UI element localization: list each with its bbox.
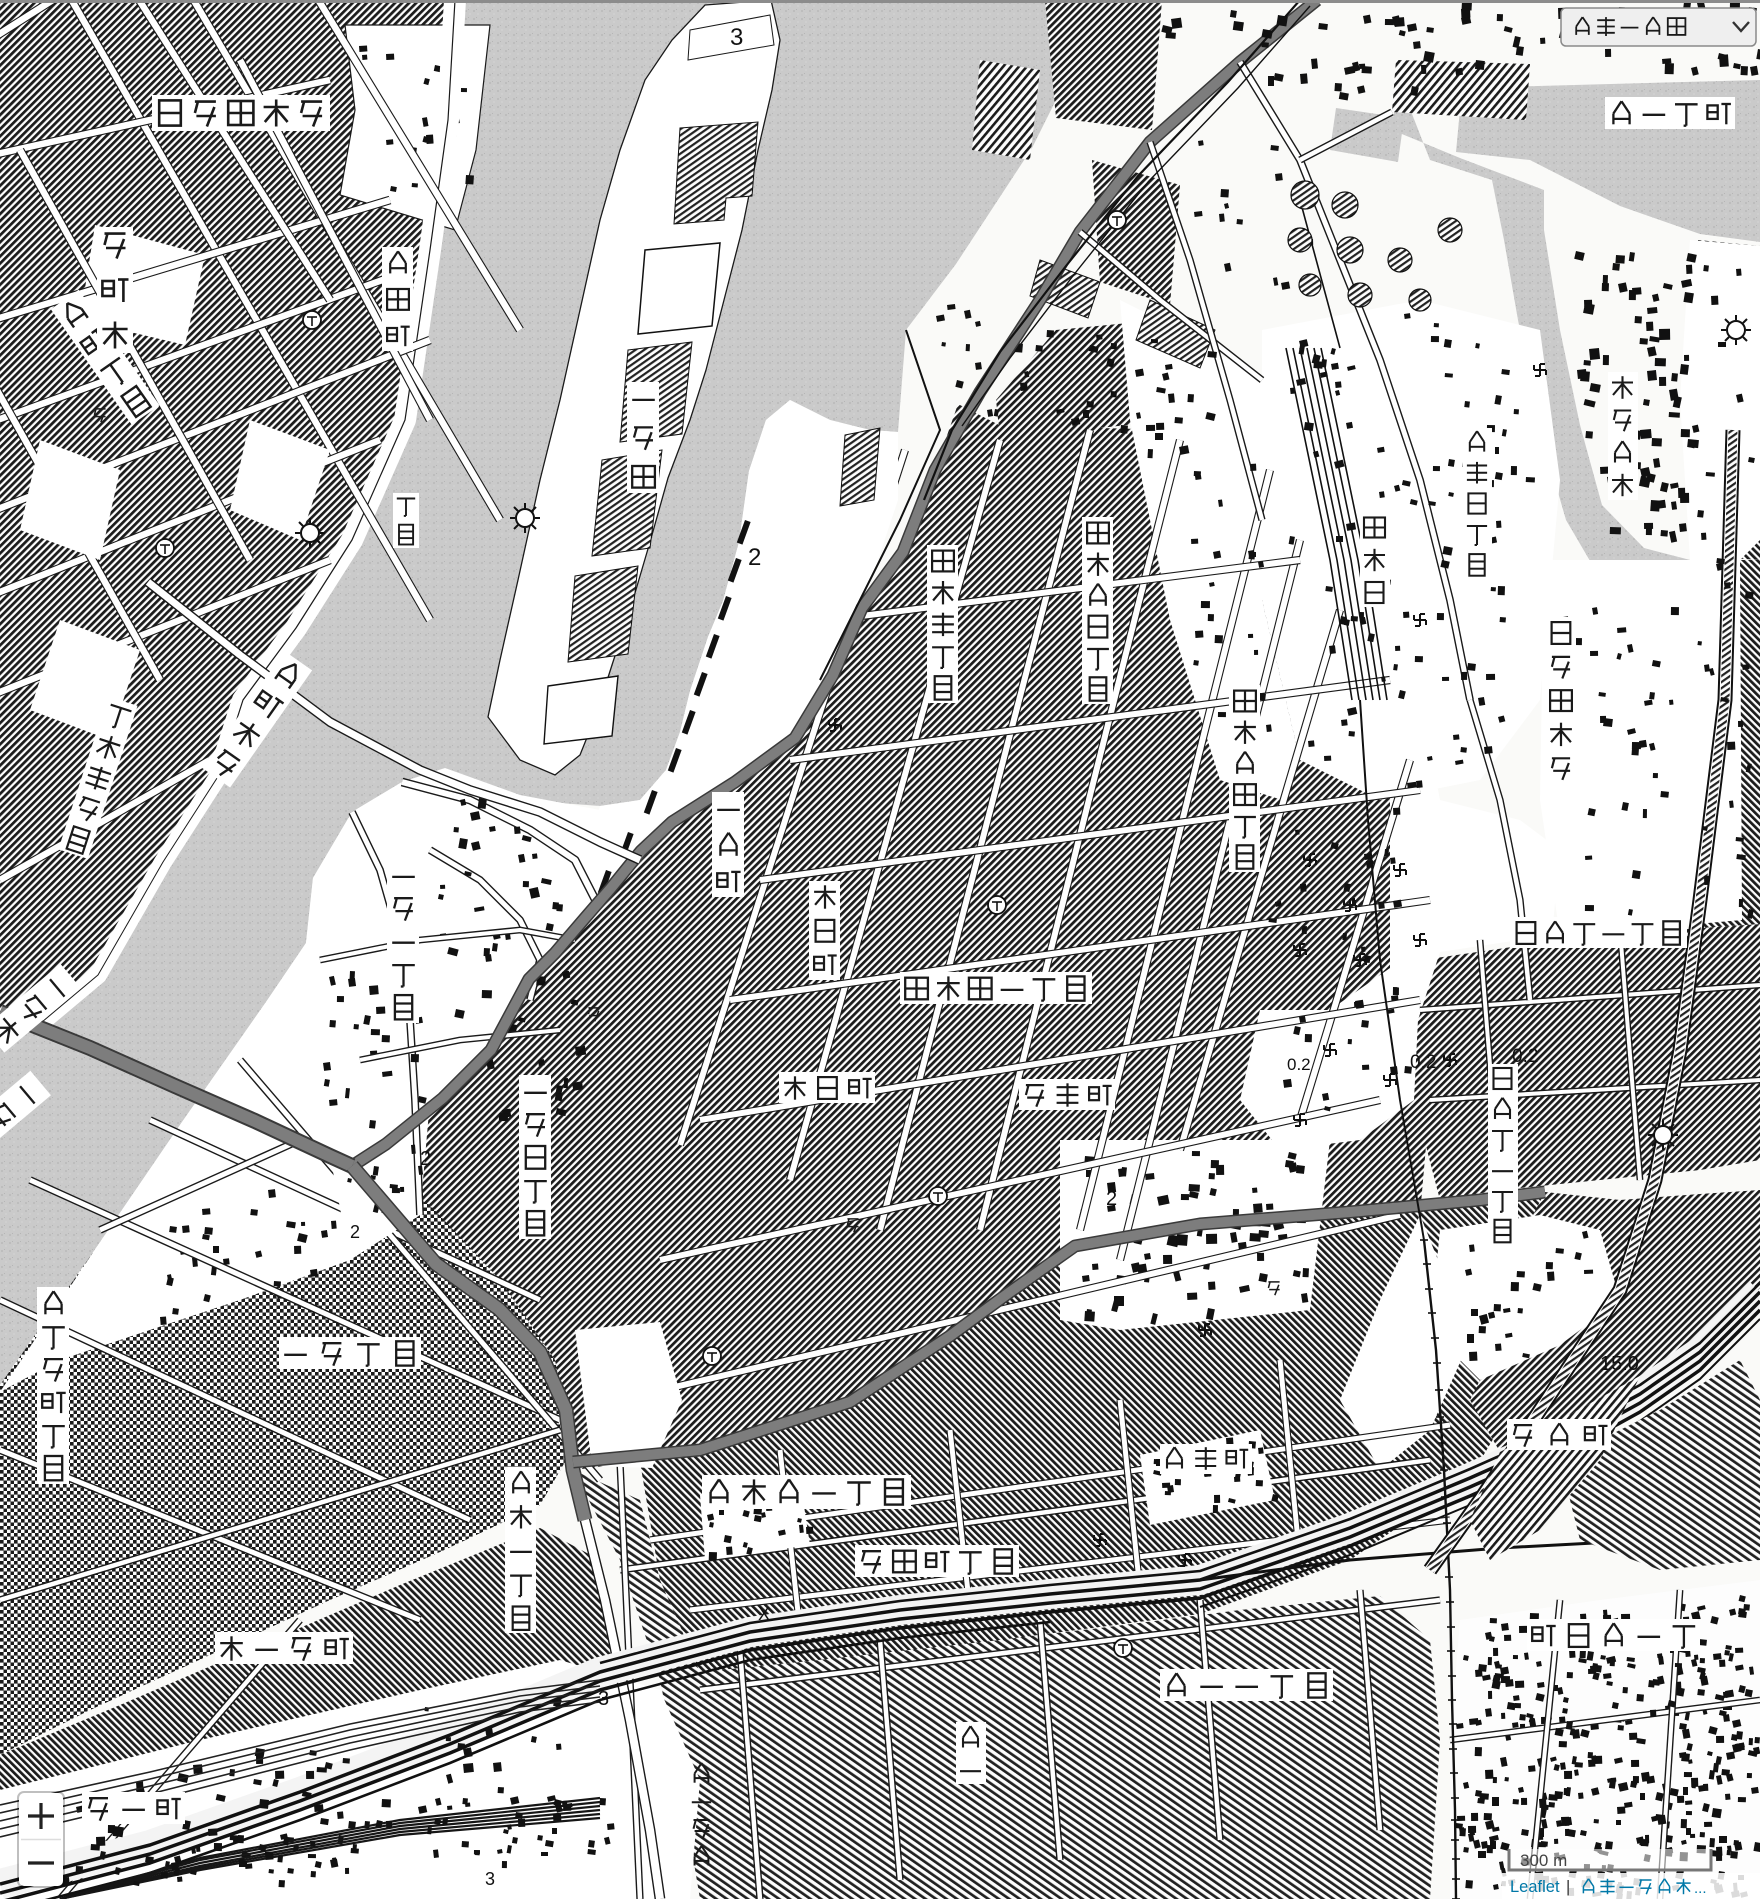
svg-text:3: 3 <box>485 1869 495 1889</box>
svg-text:X: X <box>758 1604 770 1624</box>
svg-text:3: 3 <box>730 24 743 51</box>
svg-text:15.0: 15.0 <box>1600 1353 1639 1375</box>
svg-text:2: 2 <box>1106 1188 1117 1210</box>
svg-text:2: 2 <box>350 1222 360 1242</box>
svg-text:3: 3 <box>598 1688 609 1710</box>
svg-text:Leaflet: Leaflet <box>1510 1878 1560 1896</box>
svg-text:0.2: 0.2 <box>1410 1052 1436 1073</box>
svg-text:0.2: 0.2 <box>1512 1046 1538 1067</box>
svg-text:...: ... <box>1694 1880 1707 1897</box>
svg-text:300 m: 300 m <box>1520 1851 1567 1870</box>
svg-text:2: 2 <box>420 1148 431 1170</box>
svg-text:0.2: 0.2 <box>1287 1055 1311 1074</box>
svg-text:|: | <box>1566 1878 1570 1896</box>
svg-text:2: 2 <box>748 544 761 571</box>
